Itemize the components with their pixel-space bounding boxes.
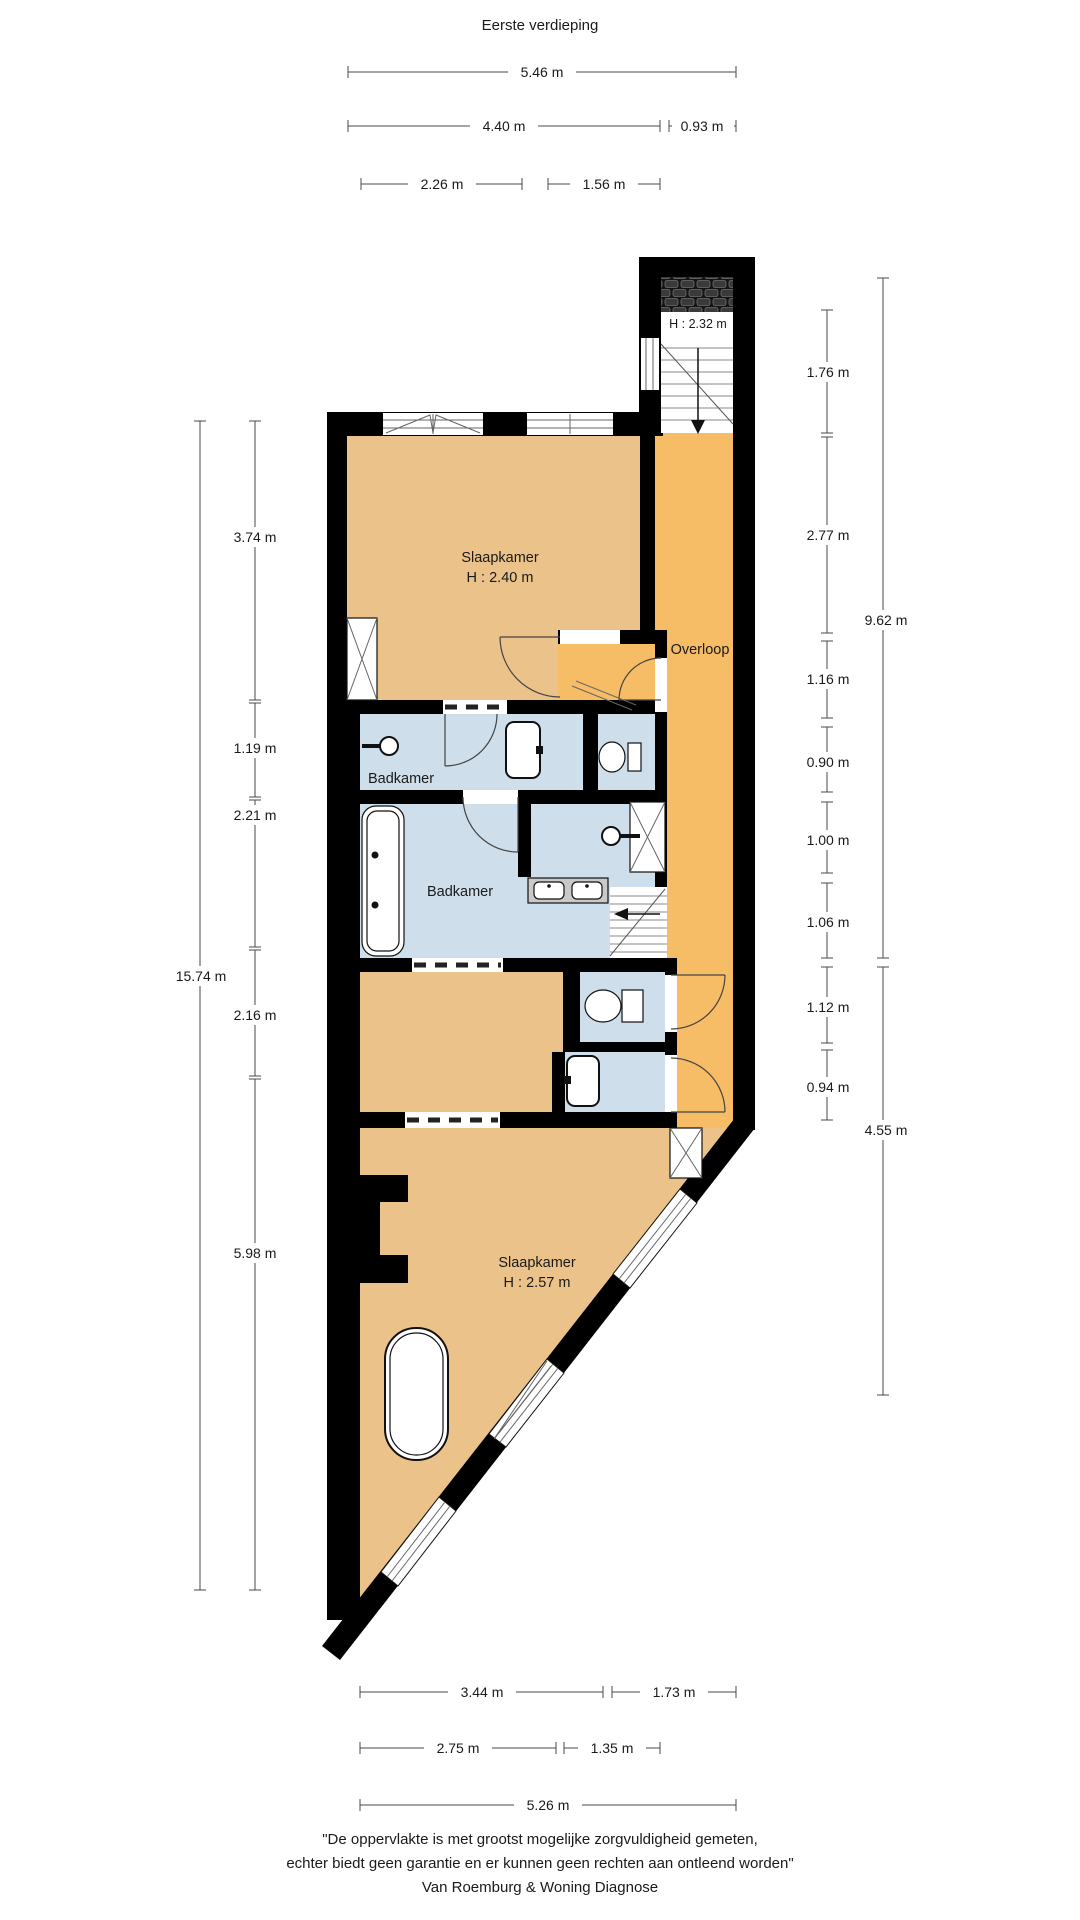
room-label-landing: Overloop [671, 642, 730, 658]
disclaimer-line-1: "De oppervlakte is met grootst mogelijke… [322, 1831, 758, 1848]
shaft-icon [670, 1128, 702, 1178]
dim-label: 0.93 m [681, 118, 724, 134]
floorplan-svg: Eerste verdieping [0, 0, 1080, 1920]
dim-label: 5.26 m [527, 1797, 570, 1813]
dim-label: 1.16 m [807, 671, 850, 687]
dimensions-top: 5.46 m 4.40 m 0.93 m 2.26 m 1.56 m [348, 62, 736, 194]
dim-label: 2.75 m [437, 1740, 480, 1756]
dim-label: 5.98 m [234, 1245, 277, 1261]
room-height-bedroom-bottom: H : 2.57 m [504, 1275, 571, 1291]
double-sink-icon [528, 878, 608, 903]
dim-label: 0.94 m [807, 1079, 850, 1095]
freestanding-bath-icon [385, 1328, 448, 1460]
dimensions-right: 1.76 m 2.77 m 1.16 m 0.90 m 1.00 m 1.06 … [796, 278, 918, 1395]
dimensions-left: 15.74 m 3.74 m 1.19 m 2.21 m 2.16 m 5.98… [165, 421, 286, 1590]
dim-label: 1.06 m [807, 914, 850, 930]
stairwell-height-label: H : 2.32 m [669, 317, 727, 331]
dim-label: 1.56 m [583, 176, 626, 192]
dim-label: 2.77 m [807, 527, 850, 543]
dim-label: 1.73 m [653, 1684, 696, 1700]
dim-label: 3.74 m [234, 529, 277, 545]
floor-strip [360, 972, 563, 1112]
room-label-bedroom-top: Slaapkamer [461, 550, 539, 566]
room-label-bathroom-large: Badkamer [427, 884, 493, 900]
dim-label: 1.12 m [807, 999, 850, 1015]
dim-label: 1.35 m [591, 1740, 634, 1756]
dim-label: 9.62 m [865, 612, 908, 628]
room-height-bedroom-top: H : 2.40 m [467, 570, 534, 586]
room-label-bathroom-small: Badkamer [368, 771, 434, 787]
shaft-icon [347, 618, 377, 700]
disclaimer-line-2: echter biedt geen garantie en er kunnen … [286, 1855, 793, 1872]
toilet-icon [585, 990, 643, 1022]
dim-label: 4.55 m [865, 1122, 908, 1138]
dim-label: 2.21 m [234, 807, 277, 823]
dim-label: 1.00 m [807, 832, 850, 848]
stairs-mid [610, 887, 667, 958]
dim-label: 1.19 m [234, 740, 277, 756]
dim-label: 3.44 m [461, 1684, 504, 1700]
floor-vestibule [558, 643, 655, 700]
floorplan-page: Eerste verdieping [0, 0, 1080, 1920]
dim-label: 0.90 m [807, 754, 850, 770]
disclaimer: "De oppervlakte is met grootst mogelijke… [286, 1831, 793, 1896]
dim-label: 15.74 m [176, 968, 227, 984]
room-label-bedroom-bottom: Slaapkamer [498, 1255, 576, 1271]
sink-icon [506, 722, 543, 778]
washbasin-icon [564, 1056, 599, 1106]
dim-label: 1.76 m [807, 364, 850, 380]
dim-label: 2.16 m [234, 1007, 277, 1023]
dim-label: 2.26 m [421, 176, 464, 192]
dim-label: 5.46 m [521, 64, 564, 80]
page-title: Eerste verdieping [482, 17, 599, 34]
toilet-icon [599, 742, 641, 772]
bathtub-icon [362, 806, 404, 956]
dim-label: 4.40 m [483, 118, 526, 134]
disclaimer-line-3: Van Roemburg & Woning Diagnose [422, 1879, 658, 1896]
dimensions-bottom: 3.44 m 1.73 m 2.75 m 1.35 m 5.26 m [360, 1682, 736, 1815]
void-hatch [661, 277, 733, 312]
